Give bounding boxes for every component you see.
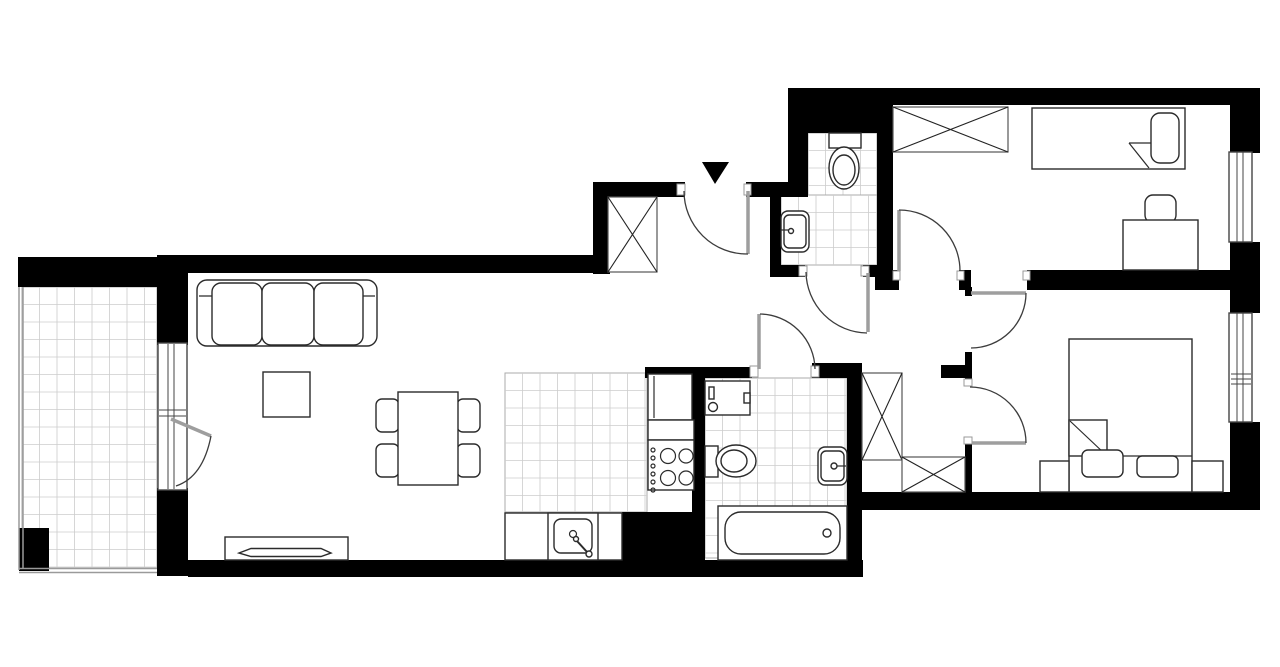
fridge (648, 374, 692, 420)
kitchen-counter-sink (505, 513, 622, 560)
coffee-table (263, 372, 310, 417)
window-balcony-door-assembly (158, 343, 187, 490)
wall-living-top (157, 255, 610, 273)
wall-balcony-top (18, 257, 157, 287)
tv-stand (225, 537, 348, 560)
jamb-bed2-upper (1023, 271, 1030, 280)
entrance-wardrobe (608, 197, 657, 272)
washing-machine (705, 381, 750, 415)
window-bedroom-1 (1229, 152, 1252, 242)
bedroom1-wardrobe (893, 107, 1008, 152)
nightstand-left (1040, 461, 1069, 492)
wall-bed2-west-lower (965, 441, 972, 492)
entrance-arrow (702, 162, 729, 184)
wall-nook-stub (941, 365, 972, 378)
jamb-bed2-lower-top (964, 379, 972, 386)
floor-plan-drawing (0, 0, 1280, 667)
sofa (197, 280, 377, 346)
wall-corridor-bottom (862, 492, 1260, 510)
hall-wardrobe-wide (902, 457, 965, 492)
jamb-bed1-right (957, 271, 964, 280)
tiles-balcony (22, 287, 157, 568)
wall-top-main (788, 88, 1260, 105)
wall-bathroom-right (847, 375, 862, 577)
wall-right-top (1230, 92, 1260, 153)
tiles-kitchen (505, 373, 647, 512)
wall-bed2-step (965, 287, 972, 296)
wall-wc-left-lower (770, 195, 781, 272)
stove (648, 440, 694, 492)
kitchen-cabinet (648, 420, 694, 440)
wall-kitchen-corner (622, 512, 692, 560)
wall-right-mid (1230, 242, 1260, 313)
wall-bedroom-band-right (1027, 270, 1230, 290)
hall-wardrobe-tall (862, 373, 902, 460)
wall-right-low (1230, 422, 1260, 510)
wall-wc-right (877, 133, 893, 265)
wall-vestibule-top (593, 182, 685, 197)
jamb-bed2-lower-bot (964, 437, 972, 444)
bed-double (1069, 339, 1192, 492)
wall-entry-jamb-right (746, 182, 788, 197)
bed-single (1032, 108, 1185, 169)
bathtub (718, 506, 847, 560)
room-hallway (657, 277, 965, 367)
wc-toilet (829, 133, 861, 189)
bathroom-sink (818, 447, 847, 485)
floor-plan (0, 0, 1280, 667)
wc-sink (781, 211, 809, 252)
wall-wc-left-upper (788, 133, 808, 197)
bathroom-toilet (705, 445, 756, 477)
wall-window-pier-upper (157, 273, 188, 345)
jamb-bath-left (750, 366, 758, 377)
window-bedroom-2 (1229, 313, 1252, 422)
wall-bottom-main (188, 560, 863, 577)
wall-window-pier-lower (157, 488, 188, 576)
jamb-bed1-left (893, 271, 900, 280)
nightstand-right (1192, 461, 1223, 492)
